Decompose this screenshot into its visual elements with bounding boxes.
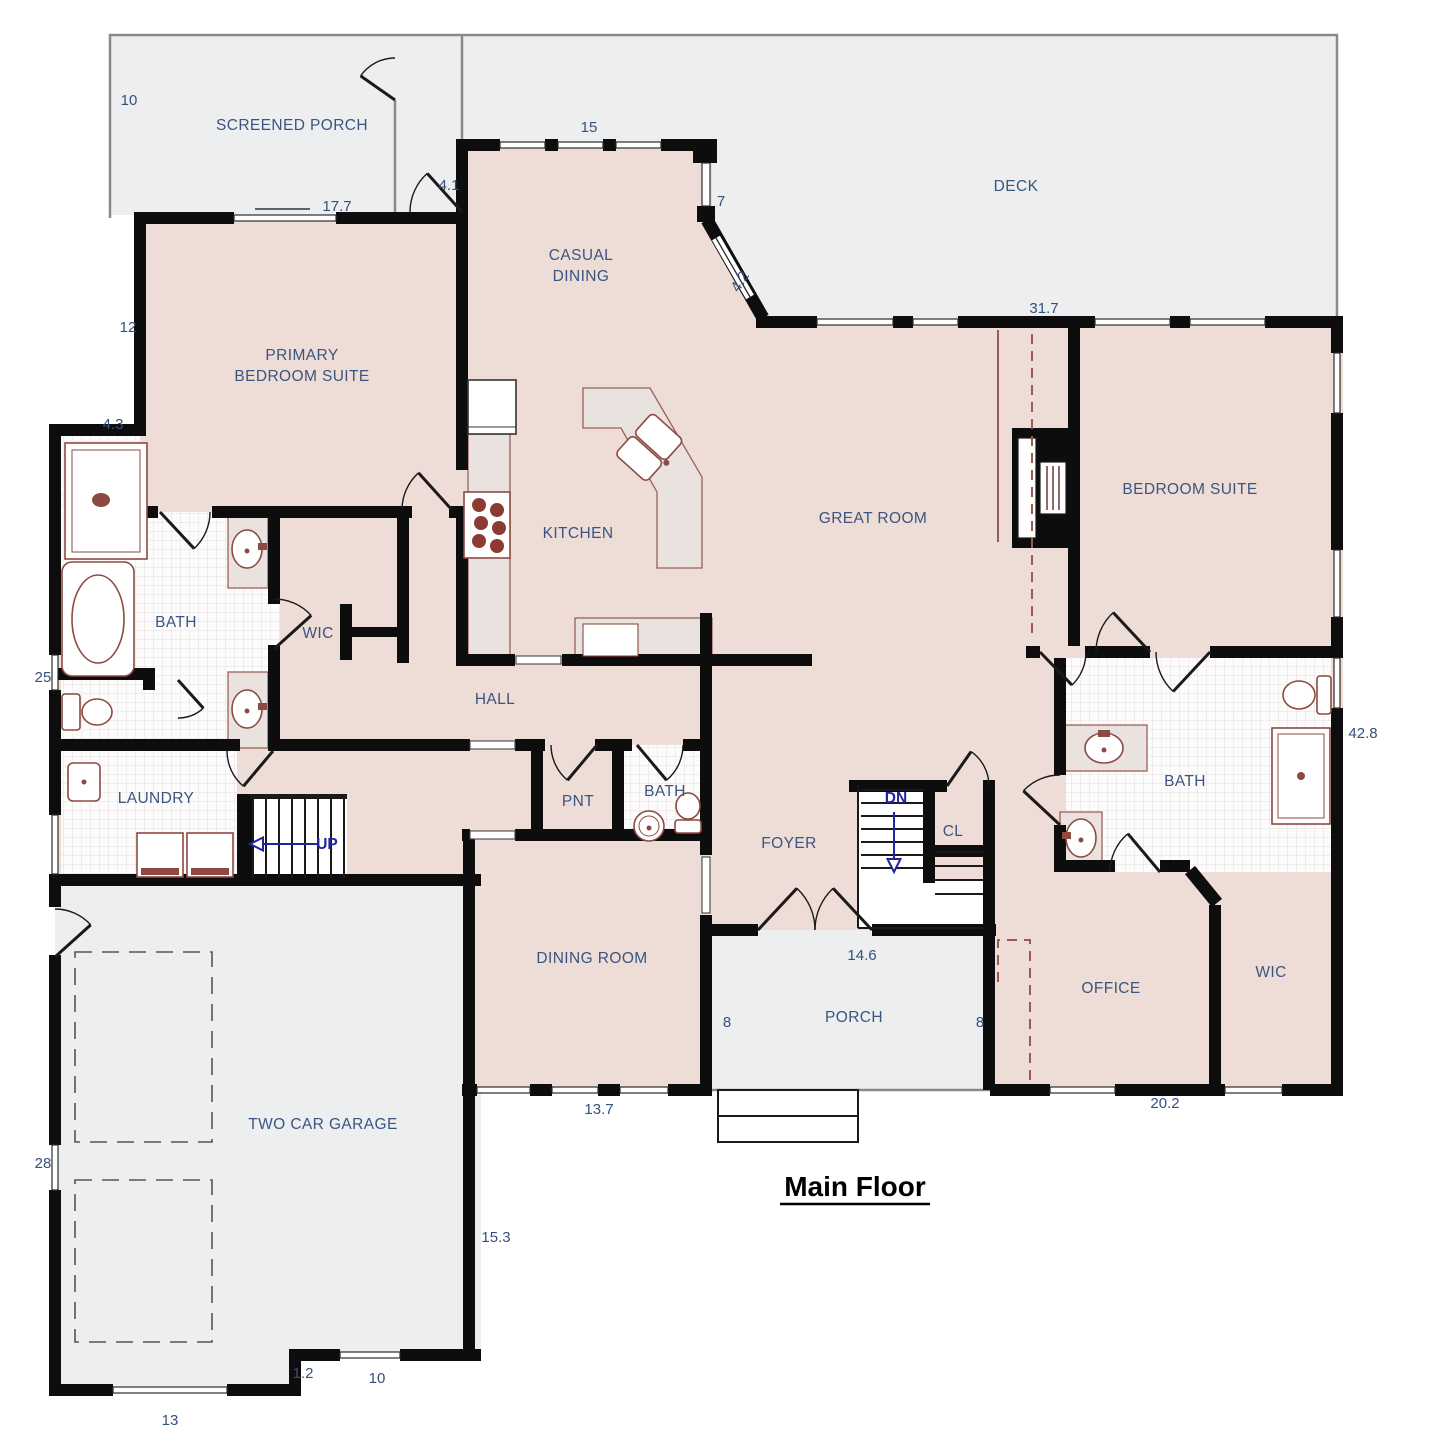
dimension-1-2-18: 1.2 (293, 1365, 314, 1382)
room-label-office: OFFICE (1081, 980, 1140, 997)
floor-plan: SCREENED PORCHDECKCASUALDININGPRIMARYBED… (0, 0, 1438, 1454)
refrigerator (468, 380, 516, 434)
page-title: Main Floor (784, 1171, 926, 1202)
dimension-10-19: 10 (369, 1370, 386, 1387)
floor-plan-page: SCREENED PORCHDECKCASUALDININGPRIMARYBED… (0, 0, 1438, 1454)
bathtub-primary (62, 562, 134, 676)
dimension-10-0: 10 (121, 92, 138, 109)
dimension-42-8-10: 42.8 (1348, 725, 1377, 742)
room-label-cl: CL (943, 823, 964, 840)
dimension-15-3-17: 15.3 (481, 1229, 510, 1246)
dimension-13-7-14: 13.7 (584, 1101, 613, 1118)
room-label-wic-right: WIC (1255, 964, 1286, 981)
room-label-screened-porch: SCREENED PORCH (216, 117, 368, 134)
room-label-hall: HALL (475, 691, 515, 708)
dimension-8-12: 8 (723, 1014, 731, 1031)
room-label-bath-primary: BATH (155, 614, 197, 631)
room-label-bath-powder: BATH (644, 783, 686, 800)
dimension-4-3-8: 4.3 (103, 416, 124, 433)
dimension-31-7-6: 31.7 (1029, 300, 1058, 317)
room-label-great-room: GREAT ROOM (819, 510, 928, 527)
dimension-14-6-11: 14.6 (847, 947, 876, 964)
dimension-17-7-1: 17.7 (322, 198, 351, 215)
stair-label-dn: DN (885, 790, 907, 807)
room-label-bedroom-suite: BEDROOM SUITE (1122, 481, 1257, 498)
room-label-foyer: FOYER (761, 835, 816, 852)
dimension-12-7: 12 (120, 319, 137, 336)
dimension-7-4: 7 (717, 193, 725, 210)
room-label-wic-primary: WIC (302, 625, 333, 642)
room-label-two-car-garage: TWO CAR GARAGE (248, 1116, 397, 1133)
room-label-porch: PORCH (825, 1009, 883, 1026)
room-label-pnt: PNT (562, 793, 594, 810)
dishwasher (583, 624, 638, 656)
dimension-13-20: 13 (162, 1412, 179, 1429)
room-label-dining-room: DINING ROOM (536, 950, 647, 967)
room-label-laundry: LAUNDRY (118, 790, 195, 807)
room-label-kitchen: KITCHEN (543, 525, 614, 542)
dimension-20-2-15: 20.2 (1150, 1095, 1179, 1112)
porch-steps (718, 1090, 858, 1142)
range (464, 492, 510, 558)
dimension-15-2: 15 (581, 119, 598, 136)
stair-label-up: UP (316, 836, 338, 853)
dimension-28-16: 28 (35, 1155, 52, 1172)
room-label-deck: DECK (994, 178, 1039, 195)
dimension-8-13: 8 (976, 1014, 984, 1031)
washer (137, 833, 183, 877)
dryer (187, 833, 233, 877)
sink-powder (634, 811, 664, 841)
dimension-25-9: 25 (35, 669, 52, 686)
shower-primary (65, 443, 147, 559)
room-label-bath-right: BATH (1164, 773, 1206, 790)
laundry-sink (68, 763, 100, 801)
shower-right (1272, 728, 1330, 824)
dimension-4-1-3: 4.1 (439, 177, 460, 194)
